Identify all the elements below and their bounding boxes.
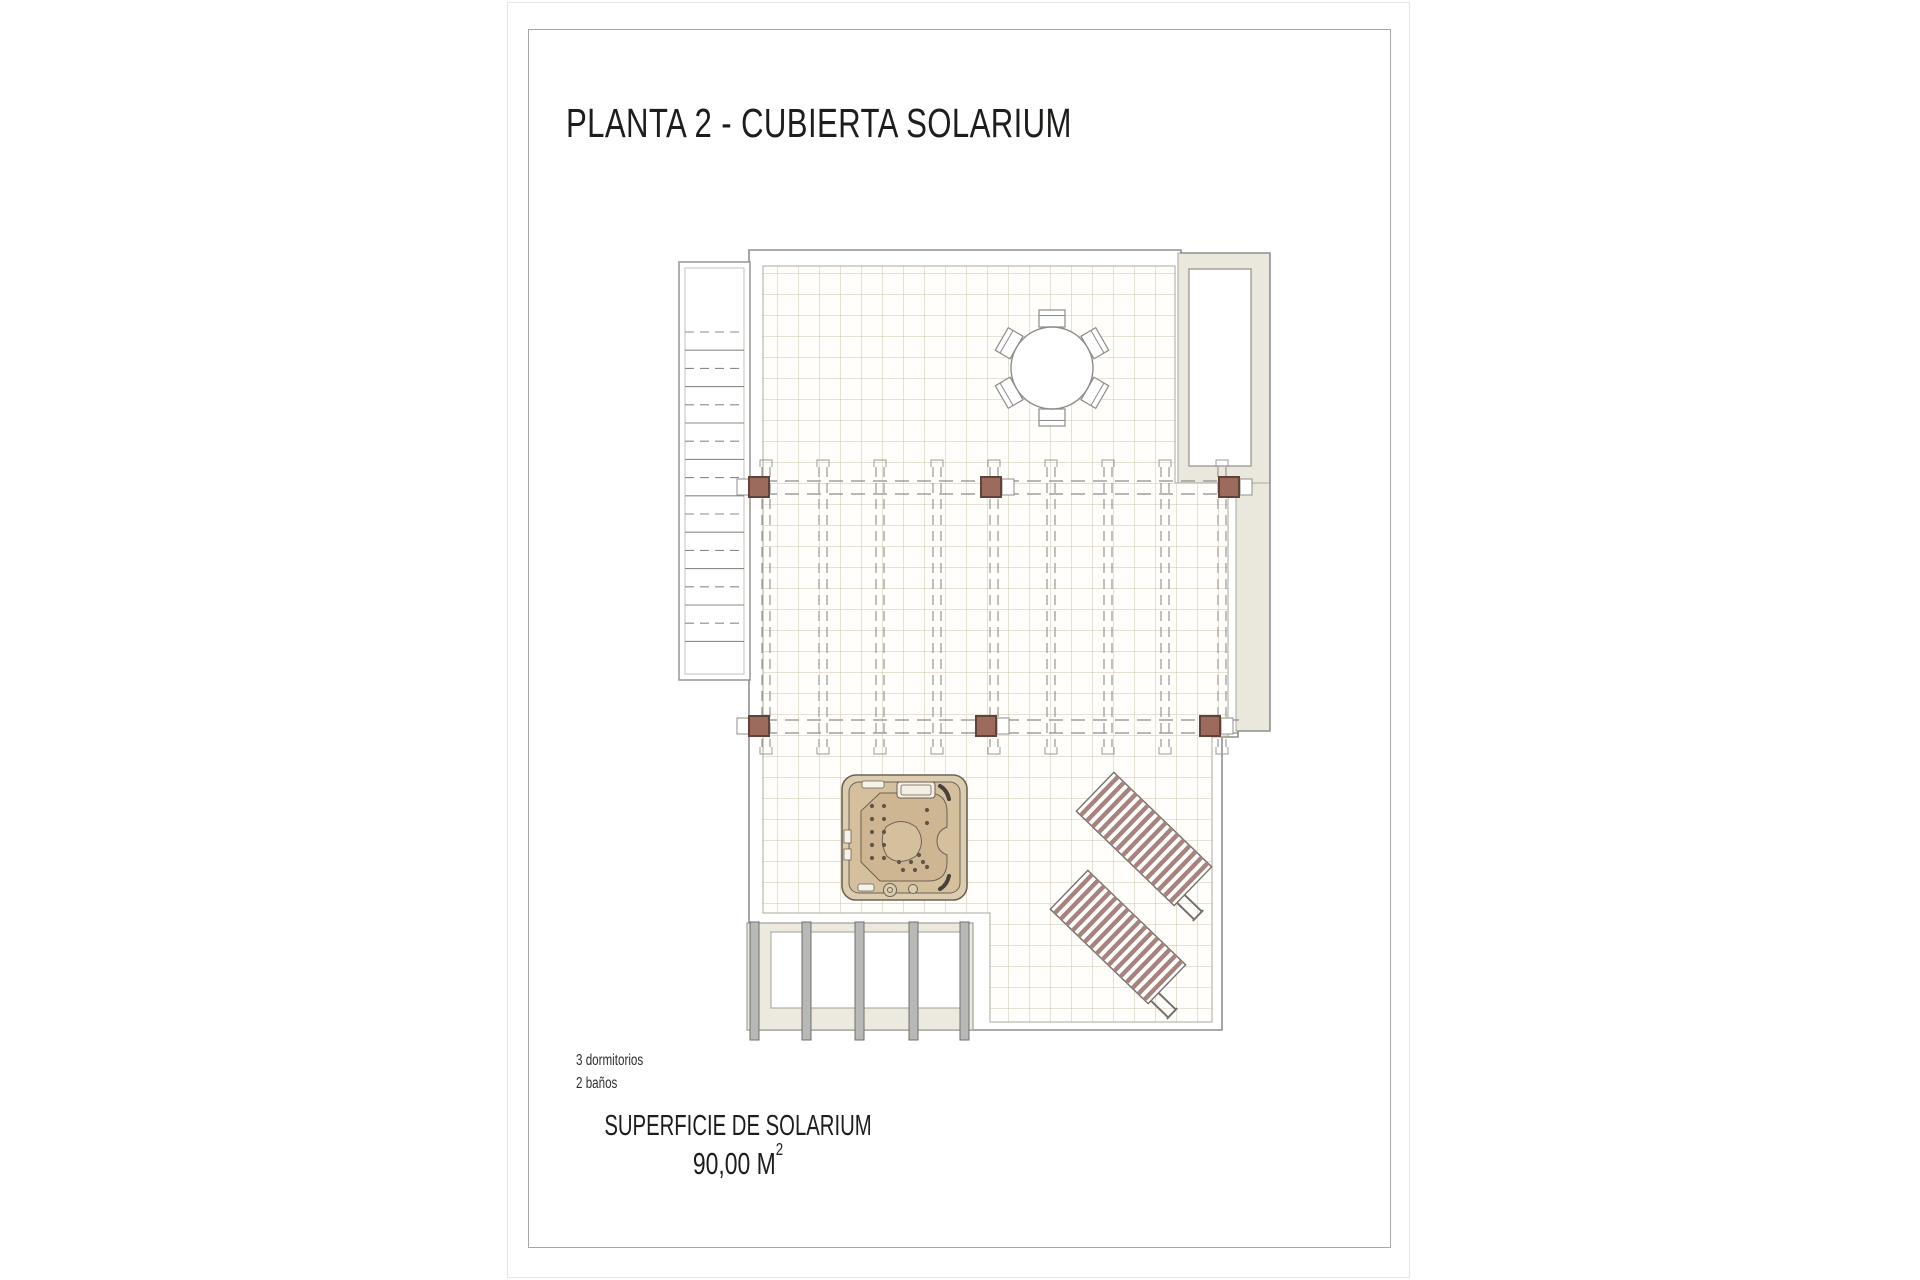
beam-stub xyxy=(737,718,749,734)
pergola-post xyxy=(1200,716,1220,736)
beam-stub xyxy=(997,718,1009,734)
area-block: SUPERFICIE DE SOLARIUM 90,00 M2 xyxy=(538,1110,938,1182)
dining-table xyxy=(1011,327,1093,409)
beam-stub xyxy=(1221,718,1233,734)
area-value: 90,00 M2 xyxy=(590,1146,886,1182)
dining-chair xyxy=(1039,310,1065,327)
dining-chair xyxy=(1039,409,1065,426)
hot-tub xyxy=(842,775,967,900)
beam-stub xyxy=(1002,479,1014,495)
porch-column xyxy=(750,922,759,1040)
pergola-post xyxy=(976,716,996,736)
porch-column xyxy=(855,922,864,1040)
floor-plan xyxy=(0,0,1920,1280)
hot-tub-pillow xyxy=(897,782,935,798)
pergola-post xyxy=(1219,477,1239,497)
porch-column xyxy=(960,922,969,1040)
area-superscript: 2 xyxy=(776,1139,783,1159)
unit-specs: 3 dormitorios 2 baños xyxy=(576,1049,643,1096)
pergola-post xyxy=(981,477,1001,497)
beam-stub xyxy=(737,479,749,495)
porch-column xyxy=(909,922,918,1040)
side-wall xyxy=(1236,483,1270,731)
area-label: SUPERFICIE DE SOLARIUM xyxy=(598,1110,878,1143)
porch-column xyxy=(802,922,811,1040)
beam-stub xyxy=(1240,479,1252,495)
pool-enclosure xyxy=(1178,253,1270,483)
pergola-post xyxy=(749,716,769,736)
staircase xyxy=(679,262,750,680)
porch xyxy=(747,922,973,1040)
spec-bedrooms: 3 dormitorios xyxy=(576,1049,643,1072)
spec-bathrooms: 2 baños xyxy=(576,1072,643,1095)
terrace-tiles xyxy=(763,266,1228,1022)
pergola-post xyxy=(749,477,769,497)
